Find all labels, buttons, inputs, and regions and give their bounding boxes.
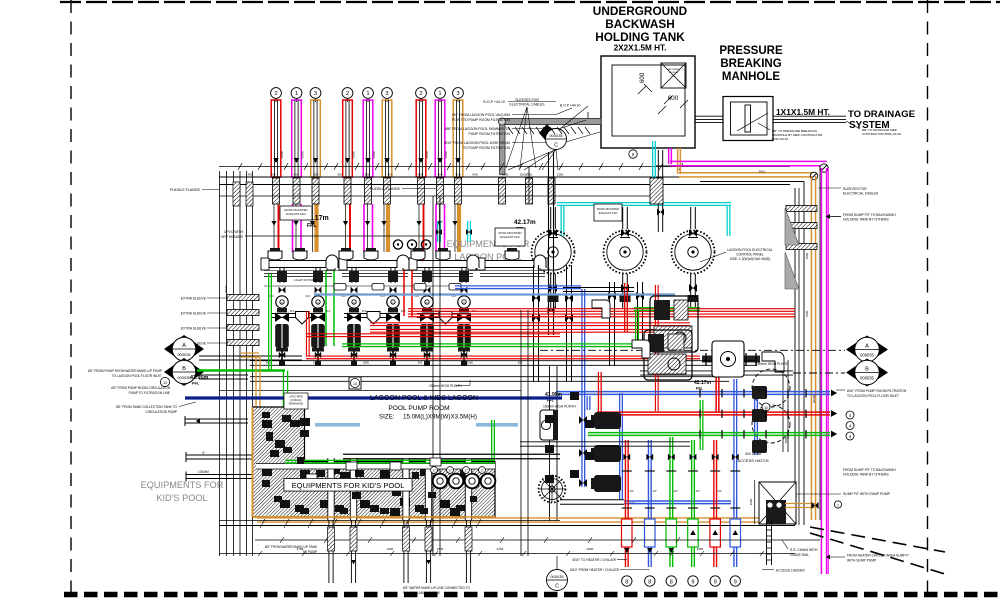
svg-text:S.S. CHAIN WITH: S.S. CHAIN WITH — [790, 548, 818, 552]
svg-text:9: 9 — [734, 579, 737, 585]
svg-text:MANHOLE: MANHOLE — [722, 71, 780, 83]
svg-text:8: 8 — [670, 579, 673, 585]
svg-text:BREAKING: BREAKING — [720, 58, 781, 70]
svg-text:000035: 000035 — [860, 376, 874, 381]
svg-text:FFL: FFL — [192, 381, 200, 386]
svg-text:-10000: -10000 — [425, 150, 429, 159]
svg-text:-10000: -10000 — [301, 150, 305, 159]
svg-text:FROM SUMP PIT TO BACKWASH: FROM SUMP PIT TO BACKWASH — [843, 213, 896, 217]
svg-text:BACKWASH: BACKWASH — [605, 17, 674, 31]
svg-text:1135: 1135 — [502, 172, 509, 176]
svg-text:HOLDING TANK BY OTHERS: HOLDING TANK BY OTHERS — [843, 218, 889, 222]
svg-text:FLX: FLX — [270, 295, 275, 298]
svg-text:8: 8 — [648, 579, 651, 585]
svg-text:PUMP TO FILTRATION LINE: PUMP TO FILTRATION LINE — [129, 391, 170, 395]
svg-text:1200: 1200 — [557, 172, 564, 176]
svg-text:1000: 1000 — [749, 498, 753, 505]
svg-text:9: 9 — [714, 579, 717, 585]
svg-text:Ø8" FROM LAGOON POOL SKIMMER T: Ø8" FROM LAGOON POOL SKIMMER TO — [445, 127, 510, 131]
svg-text:FLX: FLX — [401, 310, 406, 313]
svg-text:FLX: FLX — [306, 295, 311, 298]
svg-text:CIRCULATION PUMP: CIRCULATION PUMP — [146, 410, 177, 414]
svg-text:1500: 1500 — [467, 361, 473, 365]
svg-text:150mm HIGH PLINTH: 150mm HIGH PLINTH — [429, 384, 462, 388]
svg-text:400: 400 — [293, 172, 298, 176]
svg-text:KID'S POOL: KID'S POOL — [156, 493, 207, 503]
svg-text:640: 640 — [472, 172, 477, 176]
svg-text:TO PUMP: TO PUMP — [303, 550, 317, 554]
svg-text:Ø2" FROM PUMP ROOM CIRCULATION: Ø2" FROM PUMP ROOM CIRCULATION — [111, 386, 170, 390]
svg-text:C: C — [554, 143, 558, 149]
svg-text:LAGOON POOL & KIDS LAGOON: LAGOON POOL & KIDS LAGOON — [370, 395, 478, 402]
svg-text:SIZE:: SIZE: — [379, 414, 395, 421]
svg-text:EXTRA SLEEVE: EXTRA SLEEVE — [181, 312, 207, 316]
svg-text:SUMP PIT WITH SUMP PUMP: SUMP PIT WITH SUMP PUMP — [843, 492, 891, 496]
svg-text:FFL: FFL — [307, 223, 317, 229]
svg-text:B.O.P +44.10: B.O.P +44.10 — [483, 100, 505, 104]
svg-text:EQUIPMENTS FOR KID'S POOL: EQUIPMENTS FOR KID'S POOL — [292, 481, 405, 490]
svg-text:4": 4" — [202, 451, 205, 455]
svg-text:300: 300 — [364, 172, 369, 176]
svg-text:POINT TO PUMP ROOM FILTRATION: POINT TO PUMP ROOM FILTRATION — [452, 118, 511, 122]
svg-text:42.17m: 42.17m — [694, 380, 712, 386]
svg-text:150mm HIGH PLINTH: 150mm HIGH PLINTH — [543, 405, 576, 409]
svg-text:ELECTRICAL CABLES: ELECTRICAL CABLES — [843, 192, 879, 196]
svg-text:HOLDING TANK: HOLDING TANK — [595, 30, 685, 44]
svg-text:000035: 000035 — [549, 133, 563, 138]
svg-text:ACCESS: ACCESS — [669, 71, 679, 74]
svg-text:000035: 000035 — [550, 574, 564, 579]
svg-text:17: 17 — [480, 469, 484, 473]
svg-text:UNDERGROUND: UNDERGROUND — [593, 4, 688, 18]
svg-text:-10000: -10000 — [280, 150, 284, 159]
svg-text:1: 1 — [295, 91, 298, 97]
svg-text:BOP+43.40: BOP+43.40 — [772, 137, 788, 141]
svg-text:BACKWASH: BACKWASH — [667, 68, 680, 71]
svg-text:ACCESS HATCH: ACCESS HATCH — [737, 458, 768, 463]
svg-text:5943: 5943 — [224, 285, 228, 292]
svg-text:C1: C1 — [316, 301, 320, 305]
svg-text:600: 600 — [639, 72, 646, 83]
svg-text:1500: 1500 — [805, 252, 809, 259]
svg-text:-10": -10" — [652, 489, 657, 493]
svg-text:100MM: 100MM — [198, 470, 209, 474]
svg-text:PRESSURE: PRESSURE — [719, 45, 783, 57]
svg-text:910: 910 — [455, 172, 460, 176]
svg-text:900: 900 — [387, 172, 392, 176]
svg-text:2: 2 — [346, 91, 349, 97]
svg-text:A: A — [182, 343, 186, 349]
svg-text:FLX: FLX — [290, 310, 295, 313]
svg-text:600: 600 — [270, 172, 275, 176]
svg-text:1500: 1500 — [805, 310, 809, 317]
svg-text:8: 8 — [625, 579, 628, 585]
svg-text:1: 1 — [438, 91, 441, 97]
svg-text:C: C — [555, 584, 559, 590]
svg-text:B: B — [182, 366, 186, 372]
svg-text:900: 900 — [418, 361, 423, 365]
svg-text:C1: C1 — [425, 301, 429, 305]
svg-text:PUMP ROOM FILTRATION: PUMP ROOM FILTRATION — [469, 132, 511, 136]
svg-text:2X2X1.5M HT.: 2X2X1.5M HT. — [614, 44, 667, 53]
svg-text:EXHAUST FAN: EXHAUST FAN — [500, 235, 519, 239]
svg-text:ACCESS LADDER: ACCESS LADDER — [776, 569, 805, 573]
svg-text:DRAINAGE): DRAINAGE) — [289, 402, 304, 406]
svg-text:TO DRAINAGE: TO DRAINAGE — [848, 109, 916, 120]
svg-text:1: 1 — [837, 503, 839, 507]
svg-text:Ø4" FROM LAGOON POOL VACUUM: Ø4" FROM LAGOON POOL VACUUM — [452, 113, 510, 117]
svg-text:-10": -10" — [673, 489, 678, 493]
svg-text:3: 3 — [314, 91, 317, 97]
svg-text:17: 17 — [464, 469, 468, 473]
svg-text:EXTRA SLEEVE: EXTRA SLEEVE — [181, 327, 207, 331]
svg-text:C1: C1 — [280, 301, 284, 305]
svg-text:Ø10" FROM LAGOON POOL 4HSE DRA: Ø10" FROM LAGOON POOL 4HSE DRAIN — [444, 141, 510, 145]
svg-text:SIZE: 1.2(W)x2(H)x0.4M(D): SIZE: 1.2(W)x2(H)x0.4M(D) — [730, 257, 771, 261]
svg-text:FROM SUMP PIT TO BACKWASH: FROM SUMP PIT TO BACKWASH — [843, 468, 896, 472]
svg-text:PUDDLE FLANGE: PUDDLE FLANGE — [370, 187, 401, 191]
svg-text:2: 2 — [419, 91, 422, 97]
svg-text:(FOR A/C: (FOR A/C — [290, 398, 301, 402]
svg-text:-10000: -10000 — [444, 150, 448, 159]
svg-text:900: 900 — [518, 361, 523, 365]
svg-text:ELECTRICAL CABLES: ELECTRICAL CABLES — [509, 103, 545, 107]
svg-text:HOLDING TANK BY OTHERS: HOLDING TANK BY OTHERS — [843, 473, 889, 477]
svg-text:2: 2 — [274, 91, 277, 97]
svg-text:TO LAGOON POOL FLOOR INLET: TO LAGOON POOL FLOOR INLET — [847, 394, 899, 398]
svg-text:900: 900 — [337, 172, 342, 176]
svg-text:600: 600 — [417, 172, 422, 176]
svg-text:LIGHT FIXTURES: LIGHT FIXTURES — [294, 278, 318, 282]
svg-text:15000: 15000 — [520, 172, 529, 176]
svg-text:ROOF MOUNTED: ROOF MOUNTED — [597, 207, 619, 211]
svg-text:1: 1 — [366, 91, 369, 97]
svg-text:EXHAUST FAN: EXHAUST FAN — [599, 211, 618, 215]
svg-text:150mm HIGH PLINTH: 150mm HIGH PLINTH — [756, 362, 789, 366]
svg-text:LAGOON POOL ELECTRICAL: LAGOON POOL ELECTRICAL — [727, 248, 772, 252]
svg-text:42.17m: 42.17m — [514, 219, 536, 226]
svg-text:34: 34 — [764, 406, 768, 410]
svg-text:000035: 000035 — [860, 353, 874, 358]
svg-text:761: 761 — [527, 172, 532, 176]
svg-text:3055: 3055 — [697, 547, 704, 551]
svg-text:-10": -10" — [717, 489, 722, 493]
svg-text:300: 300 — [313, 172, 318, 176]
svg-text:3810: 3810 — [759, 170, 766, 174]
svg-text:B.O.P +44.10: B.O.P +44.10 — [560, 104, 581, 108]
svg-text:4150: 4150 — [497, 547, 504, 551]
svg-text:17: 17 — [432, 469, 436, 473]
svg-text:13: 13 — [353, 382, 357, 386]
svg-text:13: 13 — [163, 381, 167, 385]
svg-text:1X1X1.5M HT.: 1X1X1.5M HT. — [776, 107, 830, 117]
svg-text:EXTRA SLEEVE: EXTRA SLEEVE — [181, 297, 207, 301]
svg-text:C1: C1 — [391, 301, 395, 305]
svg-text:-10000: -10000 — [372, 150, 376, 159]
svg-text:Ø2" FROM SAND COLLECTION TANK: Ø2" FROM SAND COLLECTION TANK TO — [116, 405, 177, 409]
svg-text:FLX: FLX — [326, 310, 331, 313]
svg-text:A: A — [865, 344, 869, 350]
svg-text:3: 3 — [385, 91, 388, 97]
svg-text:SLEEVES FOR: SLEEVES FOR — [843, 187, 867, 191]
svg-text:10000: 10000 — [812, 394, 816, 403]
svg-text:TO PUMP ROOM FILTRATION: TO PUMP ROOM FILTRATION — [463, 146, 511, 150]
svg-text:C1: C1 — [462, 301, 466, 305]
svg-text:FLX: FLX — [362, 310, 367, 313]
svg-text:2000: 2000 — [587, 547, 594, 551]
svg-text:CONTRACTOR BOP+43.40: CONTRACTOR BOP+43.40 — [862, 132, 901, 136]
svg-text:Ø10" FROM PUMP ROOM FILTRATION: Ø10" FROM PUMP ROOM FILTRATION — [847, 389, 907, 393]
svg-text:3: 3 — [456, 91, 459, 97]
svg-text:PUDDLE FLANGE: PUDDLE FLANGE — [170, 188, 201, 192]
svg-text:POOL PUMP ROOM: POOL PUMP ROOM — [388, 405, 449, 412]
svg-text:C1: C1 — [352, 301, 356, 305]
svg-text:000035: 000035 — [177, 352, 191, 357]
svg-text:Ø2" FROM WATER MAKE-UP TANK: Ø2" FROM WATER MAKE-UP TANK — [265, 545, 318, 549]
svg-text:uPVC PIPE: uPVC PIPE — [289, 395, 303, 399]
svg-text:WITH SUMP PUMP: WITH SUMP PUMP — [847, 559, 877, 563]
svg-text:SLEEVES FOR: SLEEVES FOR — [515, 98, 539, 102]
svg-text:R.C.C BALANCING TANK: R.C.C BALANCING TANK — [403, 591, 441, 595]
svg-text:EQUIPMENTS FOR: EQUIPMENTS FOR — [141, 480, 224, 490]
svg-text:1500: 1500 — [387, 547, 394, 551]
svg-text:Ø2" FROM PUMP ROOM WATER MAKE-: Ø2" FROM PUMP ROOM WATER MAKE-UP PUMP — [88, 369, 162, 373]
svg-text:2550: 2550 — [363, 361, 369, 365]
svg-text:9: 9 — [692, 579, 695, 585]
svg-text:600: 600 — [437, 172, 442, 176]
svg-text:CONTROL PANEL: CONTROL PANEL — [736, 253, 764, 257]
svg-text:17: 17 — [448, 469, 452, 473]
svg-text:400: 400 — [247, 172, 252, 176]
svg-text:B: B — [865, 367, 869, 373]
svg-text:Ø2" WATER MAKE-UP LINE CONNECT: Ø2" WATER MAKE-UP LINE CONNECTED TO — [403, 586, 471, 590]
svg-text:-10": -10" — [695, 489, 700, 493]
svg-text:-10": -10" — [629, 489, 634, 493]
svg-text:Ø10" FROM HEATER / CHILLER: Ø10" FROM HEATER / CHILLER — [570, 568, 619, 572]
svg-text:TO LAGOON POOL FLOOR INLET: TO LAGOON POOL FLOOR INLET — [112, 374, 162, 378]
svg-text:-10000: -10000 — [352, 150, 356, 159]
svg-text:Ø10" TO HEATER / CHILLER: Ø10" TO HEATER / CHILLER — [573, 558, 617, 562]
svg-text:EXHAUST FAN: EXHAUST FAN — [286, 212, 305, 216]
